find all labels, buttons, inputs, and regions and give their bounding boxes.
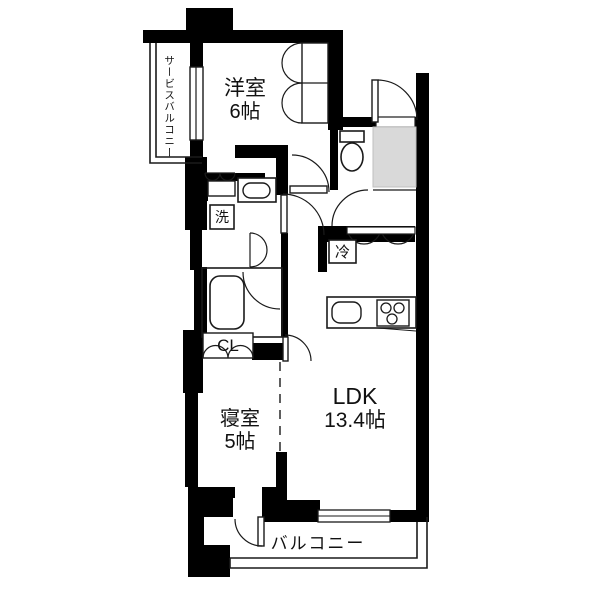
- ldk-size: 13.4帖: [300, 409, 410, 433]
- floor-plan: サービスバルコニー 洋室 6帖 洗 冷 CL 寝室 5帖 LDK 13.4帖 バ…: [0, 0, 600, 600]
- bedroom-label: 寝室 5帖: [202, 408, 278, 454]
- ldk-name: LDK: [300, 383, 410, 409]
- entry-door: [372, 80, 417, 127]
- kitchen-sink-icon: [332, 302, 361, 323]
- western-room-name: 洋室: [202, 77, 288, 101]
- ldk-door: [283, 335, 311, 361]
- bedroom-size: 5帖: [202, 431, 278, 454]
- bathtub-icon: [210, 276, 244, 329]
- balcony-door: [235, 517, 264, 546]
- washer-label: 洗: [210, 209, 234, 225]
- bathroom: [202, 268, 282, 337]
- closet-label: CL: [203, 336, 253, 356]
- toilet-icon: [340, 131, 364, 171]
- washroom-door: [281, 194, 324, 235]
- bedroom-name: 寝室: [202, 408, 278, 431]
- refrigerator-label: 冷: [329, 244, 356, 261]
- balcony-label: バルコニー: [268, 534, 368, 554]
- entry-hall: [373, 127, 416, 187]
- window-balcony: [318, 510, 390, 522]
- floor-plan-drawing: [0, 0, 600, 600]
- kitchen-counter: [327, 297, 416, 331]
- washbasin-icon: [238, 178, 276, 202]
- gas-stove-icon: [377, 300, 409, 326]
- western-room-closet: [282, 43, 328, 123]
- western-room-label: 洋室 6帖: [202, 77, 288, 124]
- western-room-door: [290, 155, 329, 193]
- bifold-door: [250, 233, 267, 267]
- service-balcony-label: サービスバルコニー: [163, 54, 175, 160]
- toilet-door-arc: [332, 190, 368, 226]
- western-room-size: 6帖: [202, 101, 288, 124]
- ldk-label: LDK 13.4帖: [300, 383, 410, 434]
